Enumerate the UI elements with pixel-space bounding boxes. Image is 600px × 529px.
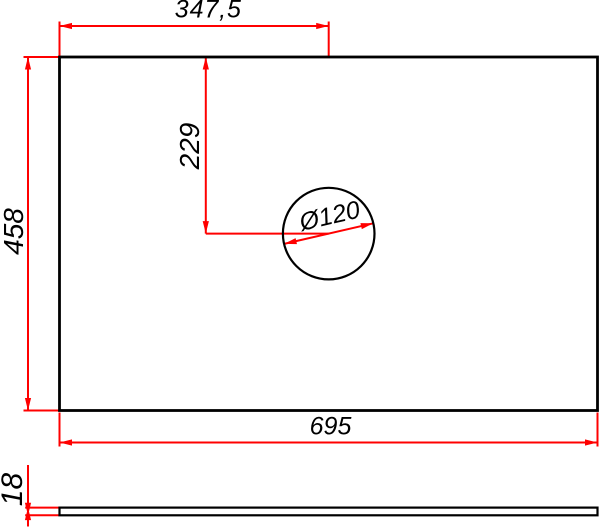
svg-text:Ø120: Ø120 — [296, 196, 363, 237]
svg-text:229: 229 — [174, 123, 205, 171]
svg-text:347,5: 347,5 — [175, 0, 242, 24]
svg-text:695: 695 — [310, 413, 352, 441]
svg-text:18: 18 — [0, 473, 29, 507]
svg-text:458: 458 — [0, 208, 29, 255]
